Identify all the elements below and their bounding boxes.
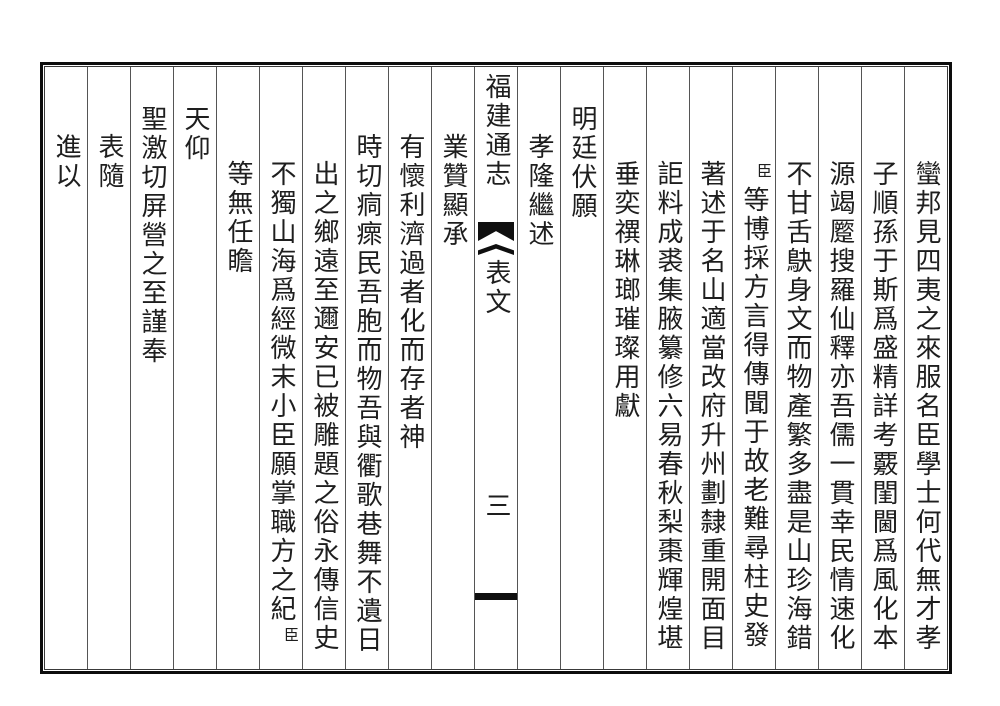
text-column: 等無任瞻 (216, 67, 259, 669)
text-column: 聖激切屏營之至謹奉 (130, 67, 173, 669)
column-line: 聖激切屏營之至謹奉 (139, 105, 165, 366)
center-banxin-column: 福建通志表文三 (474, 67, 517, 669)
text-column: 著述于名山適當改府升州劃隸重開面目 (689, 67, 732, 669)
column-text: 孝隆繼述 (525, 133, 554, 249)
text-column: 子順孫于斯爲盛精詳考覈閨閫爲風化本 (861, 67, 904, 669)
column-line: 有懷利濟過者化而存者神 (397, 133, 423, 452)
text-column: 垂奕禩琳瑯璀璨用獻 (603, 67, 646, 669)
text-column: 臣等博採方言得傳聞于故老難尋柱史發 (732, 67, 775, 669)
column-text: 不獨山海爲經微末小臣願掌職方之紀 (267, 160, 296, 624)
column-line: 孝隆繼述 (526, 133, 552, 249)
column-line: 臣等博採方言得傳聞于故老難尋柱史發 (741, 160, 767, 650)
section-title: 表文 (483, 259, 509, 317)
column-text: 詎料成裘集腋纂修六易春秋梨棗輝煌堪 (654, 160, 683, 653)
small-honorific-chen: 臣 (755, 160, 770, 186)
column-text: 垂奕禩琳瑯璀璨用獻 (611, 160, 640, 421)
column-line: 時切痌瘝民吾胞而物吾與衢歌巷舞不遺日 (354, 133, 380, 655)
fishtail-icon (478, 222, 514, 241)
column-line: 不獨山海爲經微末小臣願掌職方之紀臣 (268, 160, 294, 650)
column-line: 不甘舌鴃身文而物產繁多盡是山珍海錯 (784, 160, 810, 653)
column-line: 業贊顯承 (440, 133, 466, 249)
column-line: 蠻邦見四夷之來服名臣學士何代無才孝 (913, 160, 939, 653)
column-text: 時切痌瘝民吾胞而物吾與衢歌巷舞不遺日 (353, 133, 382, 655)
column-line: 等無任瞻 (225, 160, 251, 276)
black-bar (475, 593, 517, 600)
column-text: 等博採方言得傳聞于故老難尋柱史發 (740, 186, 769, 650)
text-columns-container: 蠻邦見四夷之來服名臣學士何代無才孝子順孫于斯爲盛精詳考覈閨閫爲風化本源竭蹷搜羅仙… (45, 67, 947, 669)
text-column: 蠻邦見四夷之來服名臣學士何代無才孝 (904, 67, 947, 669)
small-honorific-chen: 臣 (282, 624, 297, 650)
text-column: 孝隆繼述 (517, 67, 560, 669)
column-line: 天仰 (182, 105, 208, 163)
column-text: 著述于名山適當改府升州劃隸重開面目 (697, 160, 726, 653)
text-column: 進以 (45, 67, 87, 669)
column-text: 明廷伏願 (568, 105, 597, 221)
column-text: 蠻邦見四夷之來服名臣學士何代無才孝 (912, 160, 941, 653)
text-column: 不甘舌鴃身文而物產繁多盡是山珍海錯 (775, 67, 818, 669)
text-column: 明廷伏願 (560, 67, 603, 669)
text-column: 源竭蹷搜羅仙釋亦吾儒一貫幸民情速化 (818, 67, 861, 669)
column-line: 進以 (53, 133, 79, 191)
column-text: 進以 (52, 133, 81, 191)
column-text: 表隨 (95, 133, 124, 191)
text-column: 有懷利濟過者化而存者神 (388, 67, 431, 669)
page-border-frame: 蠻邦見四夷之來服名臣學士何代無才孝子順孫于斯爲盛精詳考覈閨閫爲風化本源竭蹷搜羅仙… (40, 62, 952, 674)
column-text: 有懷利濟過者化而存者神 (396, 133, 425, 452)
text-column: 表隨 (87, 67, 130, 669)
scanned-book-page: 蠻邦見四夷之來服名臣學士何代無才孝子順孫于斯爲盛精詳考覈閨閫爲風化本源竭蹷搜羅仙… (0, 0, 1000, 706)
column-line: 子順孫于斯爲盛精詳考覈閨閫爲風化本 (870, 160, 896, 653)
page-inner-border: 蠻邦見四夷之來服名臣學士何代無才孝子順孫于斯爲盛精詳考覈閨閫爲風化本源竭蹷搜羅仙… (44, 66, 948, 670)
column-text: 業贊顯承 (439, 133, 468, 249)
column-line: 表隨 (96, 133, 122, 191)
column-line: 著述于名山適當改府升州劃隸重開面目 (698, 160, 724, 653)
column-text: 等無任瞻 (224, 160, 253, 276)
column-line: 詎料成裘集腋纂修六易春秋梨棗輝煌堪 (655, 160, 681, 653)
book-title: 福建通志 (483, 73, 509, 189)
column-line: 源竭蹷搜羅仙釋亦吾儒一貫幸民情速化 (827, 160, 853, 653)
column-text: 子順孫于斯爲盛精詳考覈閨閫爲風化本 (869, 160, 898, 653)
fishtail-chevron-icon (478, 244, 514, 255)
column-text: 聖激切屏營之至謹奉 (138, 105, 167, 366)
text-column: 詎料成裘集腋纂修六易春秋梨棗輝煌堪 (646, 67, 689, 669)
column-line: 垂奕禩琳瑯璀璨用獻 (612, 160, 638, 421)
text-column: 業贊顯承 (431, 67, 474, 669)
column-text: 天仰 (181, 105, 210, 163)
column-line: 出之鄉遠至邇安已被雕題之俗永傳信史 (311, 160, 337, 653)
column-text: 出之鄉遠至邇安已被雕題之俗永傳信史 (310, 160, 339, 653)
text-column: 不獨山海爲經微末小臣願掌職方之紀臣 (259, 67, 302, 669)
text-column: 出之鄉遠至邇安已被雕題之俗永傳信史 (302, 67, 345, 669)
page-number: 三 (483, 492, 509, 521)
text-column: 天仰 (173, 67, 216, 669)
text-column: 時切痌瘝民吾胞而物吾與衢歌巷舞不遺日 (345, 67, 388, 669)
column-line: 明廷伏願 (569, 105, 595, 221)
column-text: 源竭蹷搜羅仙釋亦吾儒一貫幸民情速化 (826, 160, 855, 653)
column-text: 不甘舌鴃身文而物產繁多盡是山珍海錯 (783, 160, 812, 653)
